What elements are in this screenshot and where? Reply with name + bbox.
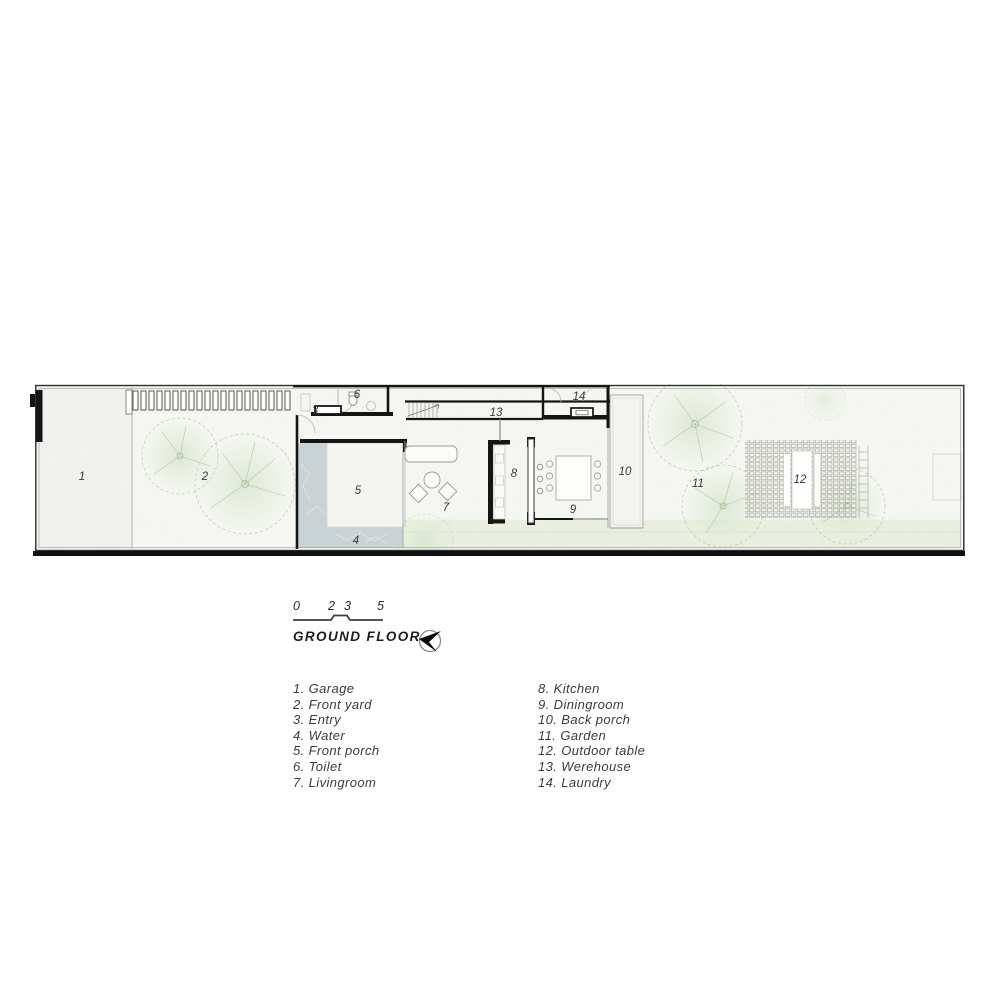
legend-item-outdoor-table: 12. Outdoor table bbox=[538, 743, 645, 759]
room-number-11: 11 bbox=[692, 478, 704, 490]
legend-item-kitchen: 8. Kitchen bbox=[538, 681, 645, 697]
legend-item-diningroom: 9. Diningroom bbox=[538, 697, 645, 713]
legend-item-front-porch: 5. Front porch bbox=[293, 743, 380, 759]
room-number-6: 6 bbox=[354, 389, 361, 401]
scale-bar: 0 2 3 5 bbox=[291, 599, 391, 625]
scale-bar-line bbox=[293, 616, 383, 621]
scale-tick-3: 3 bbox=[344, 599, 351, 613]
garage-gate-wall bbox=[36, 390, 43, 442]
dining-table bbox=[556, 456, 591, 500]
room-number-13: 13 bbox=[490, 407, 503, 419]
legend-item-toilet: 6. Toilet bbox=[293, 759, 380, 775]
scale-tick-5: 5 bbox=[377, 599, 384, 613]
washer bbox=[571, 408, 593, 417]
room-number-10: 10 bbox=[619, 466, 632, 478]
legend-right-column: 8. Kitchen 9. Diningroom 10. Back porch … bbox=[538, 681, 645, 790]
room-number-5: 5 bbox=[355, 485, 362, 497]
section-ground-line bbox=[33, 551, 965, 556]
scale-tick-0: 0 bbox=[293, 599, 300, 613]
room-number-1: 1 bbox=[79, 471, 85, 483]
north-arrow-icon bbox=[415, 626, 445, 656]
room-number-3: 3 bbox=[312, 405, 319, 417]
tree bbox=[140, 416, 220, 496]
room-number-9: 9 bbox=[570, 504, 577, 516]
legend-item-water: 4. Water bbox=[293, 728, 380, 744]
legend-item-garage: 1. Garage bbox=[293, 681, 380, 697]
floor-plan-drawing: 1 2 3 4 5 6 7 8 9 10 11 12 13 14 bbox=[29, 384, 965, 556]
legend-item-laundry: 14. Laundry bbox=[538, 775, 645, 791]
kitchen-island bbox=[528, 439, 534, 523]
sofa bbox=[405, 446, 457, 462]
kitchen-wall bbox=[488, 440, 493, 524]
back-porch-area bbox=[610, 395, 643, 528]
porch-wall bbox=[300, 439, 407, 443]
legend-item-back-porch: 10. Back porch bbox=[538, 712, 645, 728]
room-number-14: 14 bbox=[573, 391, 586, 403]
room-number-12: 12 bbox=[794, 474, 807, 486]
legend-left-column: 1. Garage 2. Front yard 3. Entry 4. Wate… bbox=[293, 681, 380, 790]
legend-item-werehouse: 13. Werehouse bbox=[538, 759, 645, 775]
sink bbox=[315, 406, 341, 414]
room-number-4: 4 bbox=[353, 535, 359, 547]
room-number-7: 7 bbox=[443, 502, 450, 514]
front-porch-deck bbox=[327, 443, 403, 527]
legend-item-entry: 3. Entry bbox=[293, 712, 380, 728]
room-number-8: 8 bbox=[511, 468, 518, 480]
page-title: GROUND FLOOR bbox=[293, 629, 421, 644]
gate-post bbox=[30, 394, 35, 407]
front-yard-fence bbox=[126, 390, 290, 414]
legend-item-garden: 11. Garden bbox=[538, 728, 645, 744]
legend-item-front-yard: 2. Front yard bbox=[293, 697, 380, 713]
scale-tick-2: 2 bbox=[327, 599, 335, 613]
legend-item-livingroom: 7. Livingroom bbox=[293, 775, 380, 791]
coffee-table bbox=[424, 472, 440, 488]
room-number-2: 2 bbox=[201, 471, 209, 483]
water-and-porch bbox=[298, 443, 403, 548]
